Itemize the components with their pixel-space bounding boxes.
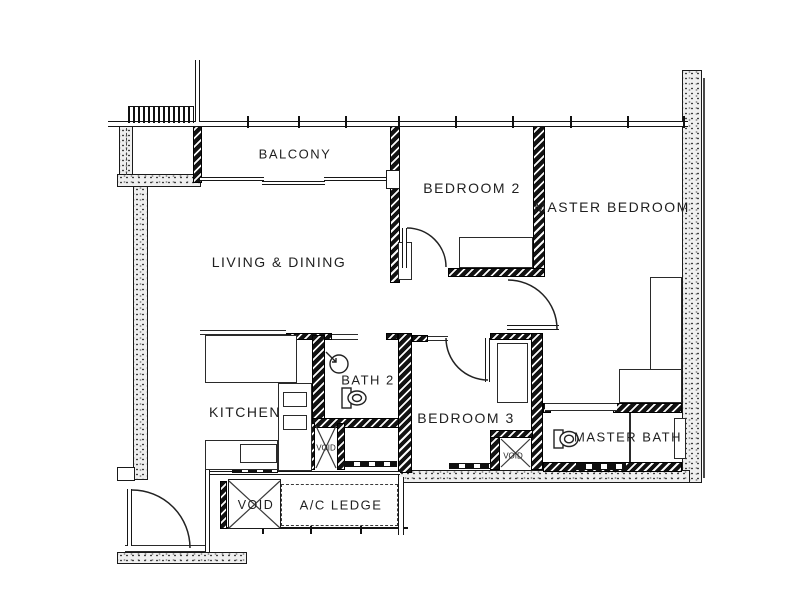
acledge-right-edge — [398, 477, 404, 535]
entry-door-threshold — [125, 545, 210, 552]
room-label-balcony: BALCONY — [259, 147, 332, 162]
bedroom2-bed — [459, 237, 533, 268]
bath2-bottom-wall — [312, 418, 400, 428]
room-label-master-bedroom: MASTER BEDROOM — [534, 199, 690, 215]
bedroom2-master-divider-wall — [533, 124, 545, 272]
bath2-bedroom3-wall — [398, 333, 412, 473]
bedroom3-wardrobe — [497, 343, 528, 403]
kitchen-sink-bowl — [283, 392, 307, 407]
rail-tick — [512, 116, 514, 128]
balcony-sliding-door-panel — [262, 181, 325, 185]
room-label-kitchen: KITCHEN — [209, 404, 281, 420]
planter-trellis — [128, 106, 194, 123]
room-label-living-dining: LIVING & DINING — [212, 254, 347, 270]
room-label-bedroom-3: BEDROOM 3 — [417, 410, 515, 426]
masterbath-door-threshold — [545, 403, 617, 411]
room-label-bath-2: BATH 2 — [341, 373, 395, 388]
rail-tick — [398, 116, 400, 128]
left-exterior-wall — [133, 186, 148, 480]
rail-tick — [570, 116, 572, 128]
bath2-left-wall — [312, 335, 325, 425]
kitchen-counter-top — [205, 335, 297, 383]
bedroom3-door-swing-arc — [446, 338, 488, 380]
bedroom3-top-wall-left — [412, 335, 428, 342]
masterbath-toilet-bowl-inner — [565, 435, 574, 443]
right-wall-outer-face-line — [703, 78, 705, 478]
entry-wall-step — [117, 467, 135, 481]
balcony-sliding-door-panel — [324, 177, 388, 181]
ledge-window — [344, 461, 397, 467]
kitchen-stove — [240, 444, 277, 463]
bedroom2-bottom-wall — [448, 268, 545, 277]
bedroom3-window — [449, 463, 491, 469]
masterbath-toilet-tank — [554, 430, 563, 448]
entry-door-swing-arc — [132, 490, 190, 548]
room-label-ac-ledge: A/C LEDGE — [300, 498, 383, 513]
bath2-door-threshold — [332, 334, 358, 340]
voidshaft2-left-wall — [490, 436, 500, 470]
masterbath-top-wall — [613, 403, 682, 413]
bedroom3-master-wall — [531, 333, 543, 470]
master-bedroom-door-swing-arc — [508, 280, 557, 329]
rail-tick — [627, 116, 629, 128]
bath2-toilet-bowl-inner — [353, 395, 362, 402]
bath2-sink-arrow — [326, 352, 336, 362]
bath2-toilet-bowl — [348, 391, 366, 405]
rail-tick — [247, 116, 249, 128]
master-wardrobe-lower — [619, 369, 682, 403]
bottom-left-exterior-wall — [117, 552, 247, 564]
floor-plan: BALCONY LIVING & DINING BEDROOM 2 MASTER… — [0, 0, 794, 600]
rail-tick — [455, 116, 457, 128]
bedroom2-door-leaf — [402, 228, 407, 268]
entry-door-leaf — [127, 489, 132, 546]
bedroom3-top-wall-right — [490, 333, 537, 340]
master-wardrobe-upper — [650, 277, 682, 371]
bedroom2-door-swing-arc — [407, 228, 446, 267]
planter-right-wall — [193, 122, 202, 183]
bedroom3-door-threshold — [428, 336, 448, 341]
voidshaft2-top-wall — [490, 430, 533, 438]
master-bedroom-door-leaf — [507, 325, 559, 330]
rail-tick — [298, 116, 300, 128]
planter-bottom-wall — [117, 174, 201, 187]
planter-open-edge — [126, 128, 128, 175]
party-wall-line-top — [195, 60, 200, 122]
bath2-sink — [330, 355, 348, 373]
bath2-toilet-tank — [342, 388, 351, 408]
rail-tick — [683, 116, 685, 128]
acledge-left-dark-pier — [220, 481, 227, 529]
rail-tick — [345, 116, 347, 128]
room-label-master-bath: MASTER BATH — [574, 430, 682, 445]
room-label-void-shaft-kitchen: VOID — [316, 444, 336, 453]
masterbath-window — [576, 463, 626, 470]
kitchen-sink-bowl — [283, 415, 307, 430]
bedroom2-wall-niche — [386, 170, 400, 189]
entry-kitchen-wall-line — [205, 470, 210, 552]
room-label-void-main: VOID — [238, 498, 275, 512]
room-label-void-shaft-bedroom3: VOID — [503, 452, 523, 461]
bedroom3-door-leaf — [485, 338, 490, 382]
bath2-top-wall-right — [386, 333, 398, 340]
balcony-sliding-door-panel — [200, 177, 264, 181]
room-label-bedroom-2: BEDROOM 2 — [423, 180, 521, 196]
